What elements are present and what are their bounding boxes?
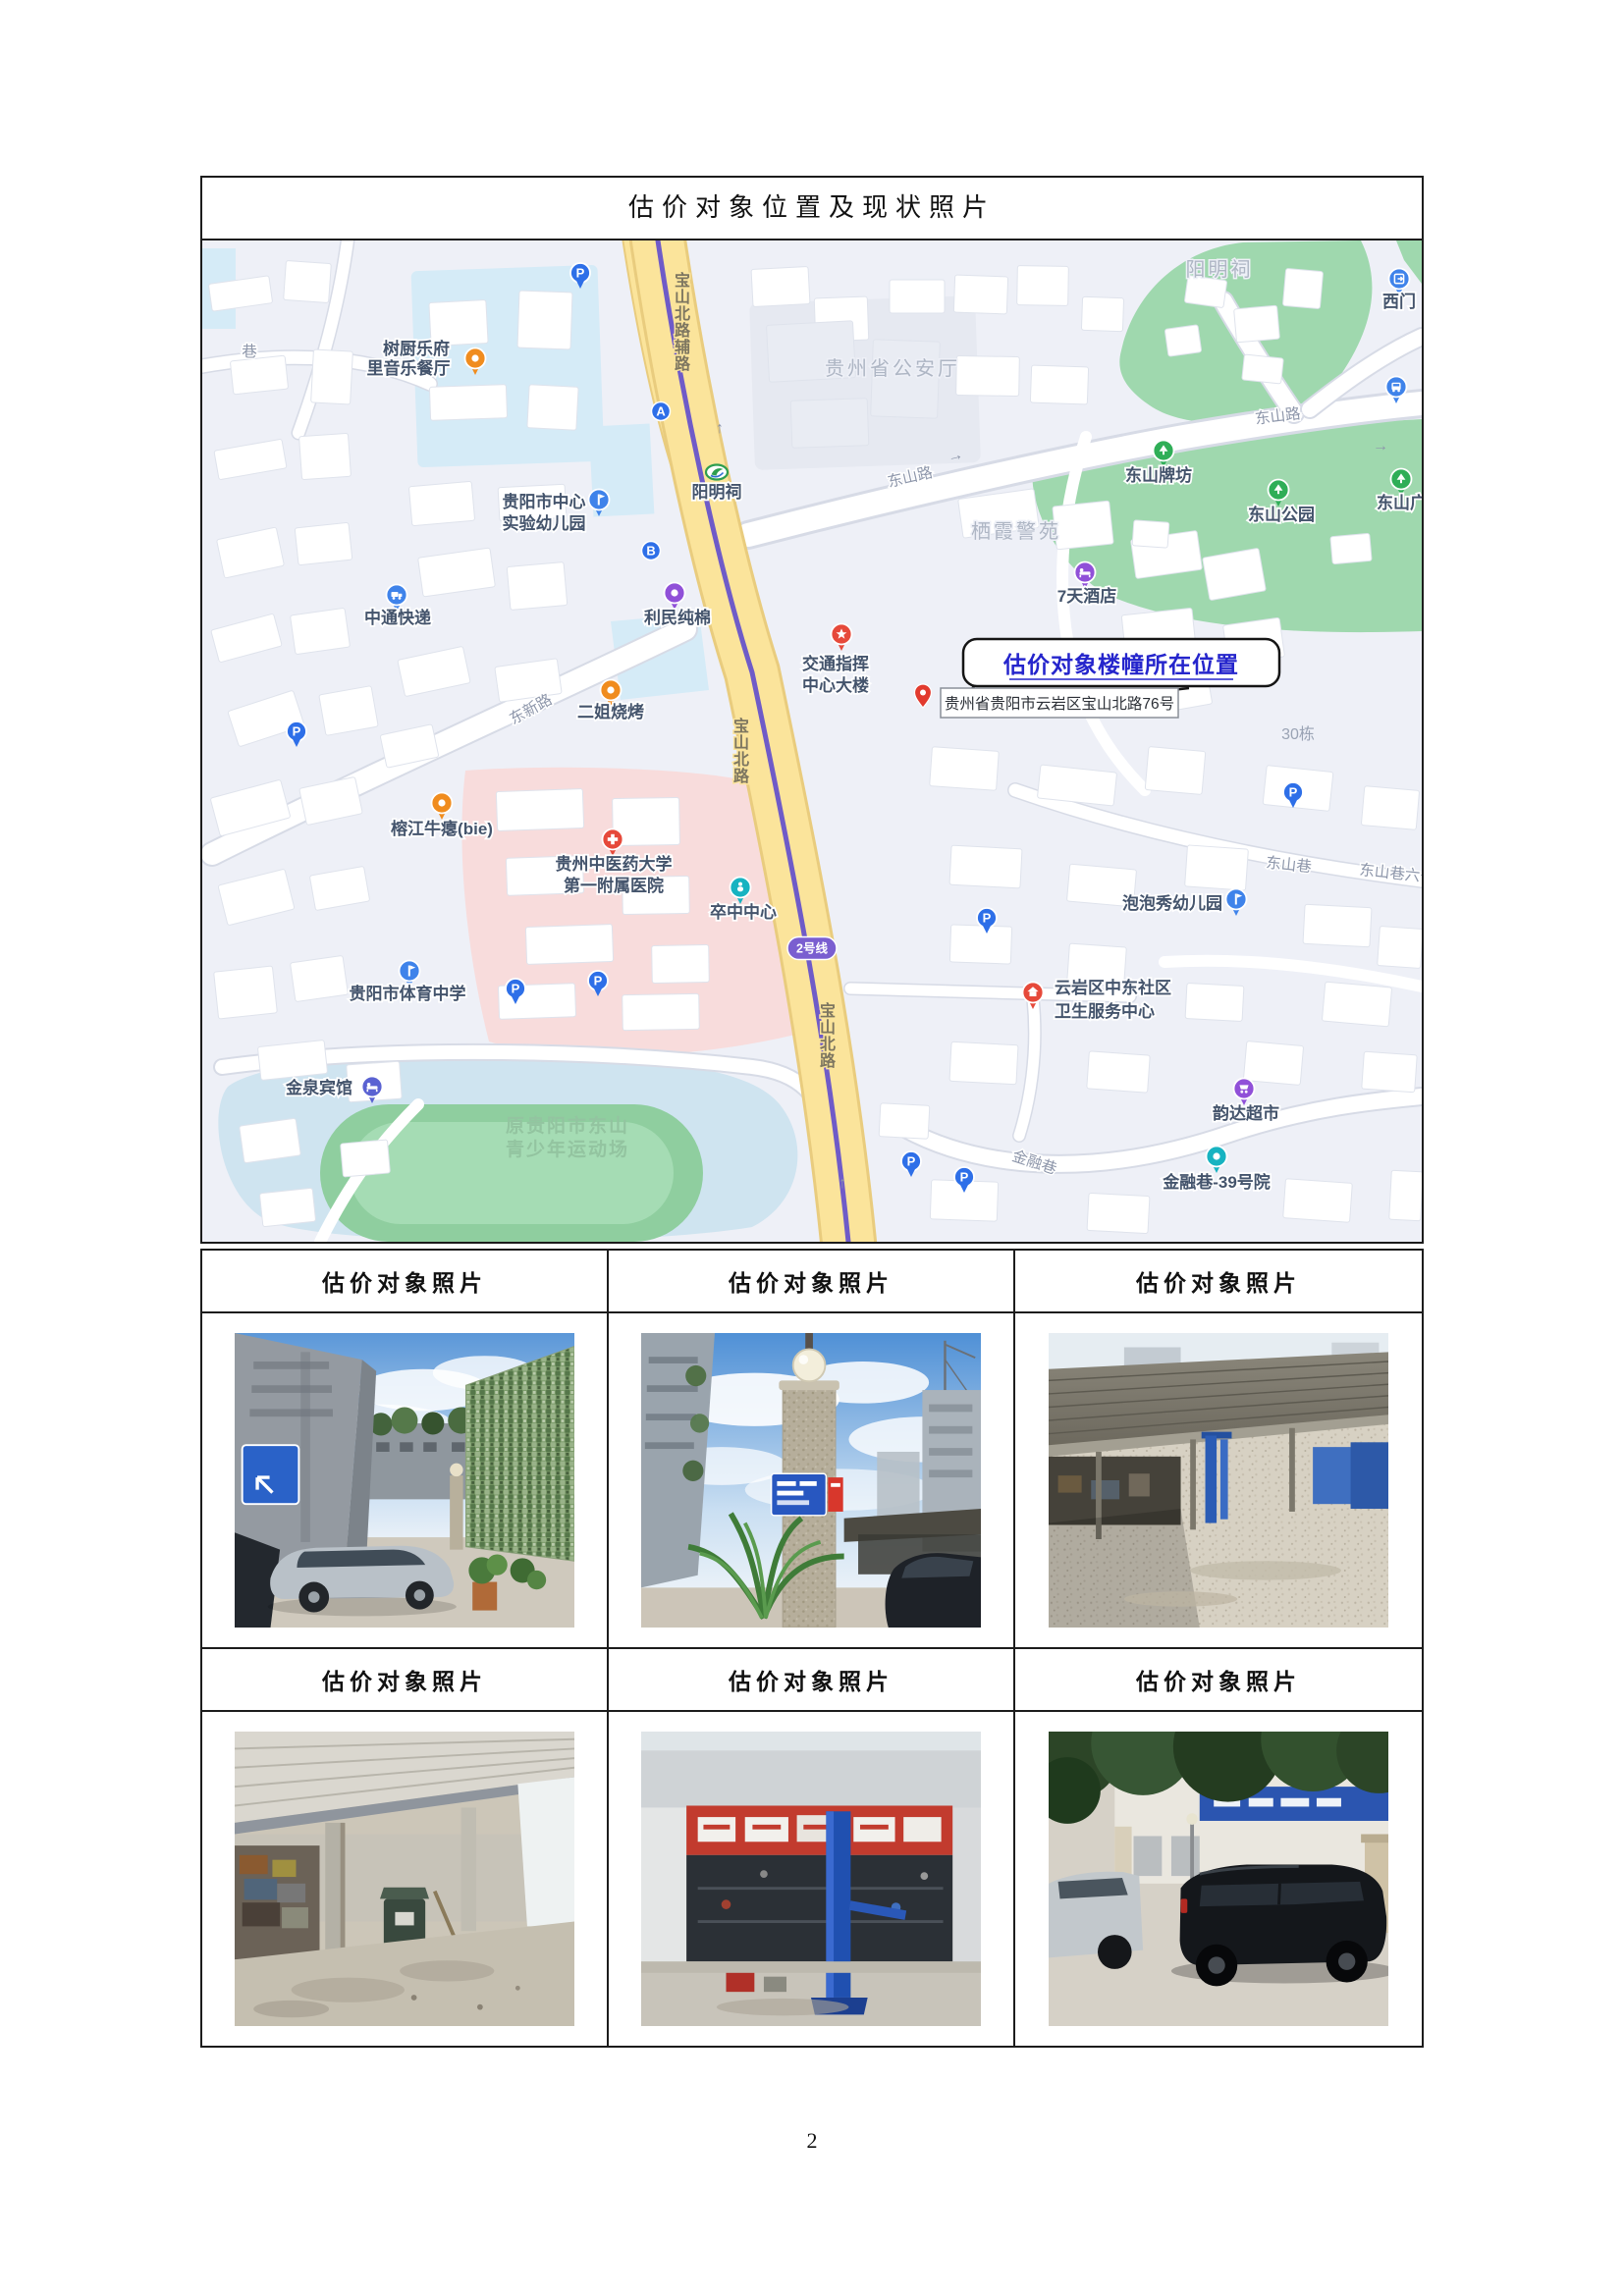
photo-cell-3 [1015, 1313, 1422, 1649]
photo-5 [641, 1732, 981, 2026]
map-pin-line2: 2号线 [787, 937, 837, 960]
map-label: 贵阳市体育中学 [350, 984, 466, 1003]
photo-cell-6 [1015, 1712, 1422, 2046]
map-label: 卫生服务中心 [1055, 1001, 1155, 1021]
map-label: 卒中中心 [710, 902, 777, 922]
map-label: 30栋 [1281, 725, 1315, 743]
map-label: 里音乐餐厅 [367, 358, 451, 378]
map-pin-metro [706, 465, 728, 480]
map-label: 宝山北路 [820, 1001, 837, 1070]
map-label: 第一附属医院 [564, 876, 664, 895]
callout-text: 估价对象楼幢所在位置 [1002, 652, 1239, 677]
photo-header-4: 估价对象照片 [202, 1649, 609, 1712]
map-label: 金融巷-39号院 [1162, 1172, 1271, 1192]
map-label: 实验幼儿园 [503, 513, 586, 533]
map-label: 交通指挥 [802, 654, 869, 673]
map-label: 西门 [1382, 292, 1416, 311]
map-label: 栖霞警苑 [971, 520, 1061, 543]
photo-header-2: 估价对象照片 [609, 1251, 1015, 1313]
photo-1 [235, 1333, 574, 1628]
map-label: 东山广场 [1377, 493, 1422, 512]
map-label: 中通快递 [364, 608, 431, 627]
svg-text:P: P [960, 1170, 969, 1185]
photo-3 [1049, 1333, 1388, 1628]
map-label: 云岩区中东社区 [1055, 978, 1171, 997]
svg-text:P: P [512, 982, 520, 996]
map: 估价对象楼幢所在位置 贵州省贵阳市云岩区宝山北路76号 PPPPPPPPAB2号… [202, 240, 1422, 1242]
map-label: → [1373, 438, 1388, 454]
map-label: 金泉宾馆 [285, 1078, 352, 1097]
photo-4 [235, 1732, 574, 2026]
photo-cell-1 [202, 1313, 609, 1649]
photo-header-6: 估价对象照片 [1015, 1649, 1422, 1712]
map-label: 阳明祠 [692, 482, 742, 502]
map-label: 巷 [242, 343, 257, 360]
svg-text:P: P [293, 724, 301, 739]
map-label: 青少年运动场 [506, 1138, 629, 1160]
photo-cell-4 [202, 1712, 609, 2046]
map-label: 树厨乐府 [383, 339, 450, 358]
photo-grid: 估价对象照片 估价对象照片 估价对象照片 [200, 1249, 1424, 2048]
photo-cell-2 [609, 1313, 1015, 1649]
map-label: 7天酒店 [1057, 586, 1116, 606]
map-label: 阳明祠 [1186, 258, 1254, 281]
photo-2 [641, 1333, 981, 1628]
page-number: 2 [0, 2128, 1624, 2154]
map-label: 二姐烧烤 [577, 702, 644, 721]
photo-6 [1049, 1732, 1388, 2026]
map-pin-badge: B [642, 542, 661, 561]
photo-header-1: 估价对象照片 [202, 1251, 609, 1313]
photo-cell-5 [609, 1712, 1015, 2046]
map-label: 贵阳市中心 [503, 492, 586, 511]
address-text: 贵州省贵阳市云岩区宝山北路76号 [945, 695, 1174, 713]
svg-text:A: A [656, 404, 666, 419]
map-label: 贵州省公安厅 [825, 357, 960, 380]
svg-text:2号线: 2号线 [796, 941, 828, 956]
map-label: 原贵阳市东山 [506, 1114, 629, 1137]
map-label: 利民纯棉 [644, 608, 711, 627]
map-label: 泡泡秀幼儿园 [1122, 893, 1222, 913]
svg-text:P: P [594, 974, 603, 988]
map-label: 韵达超市 [1213, 1103, 1279, 1123]
map-label: ↑ [716, 420, 724, 437]
map-label: ↑ [839, 1175, 846, 1192]
svg-text:P: P [983, 911, 992, 926]
map-label: 宝山北路辅路 [675, 271, 691, 373]
map-container: 估价对象楼幢所在位置 贵州省贵阳市云岩区宝山北路76号 PPPPPPPPAB2号… [202, 240, 1422, 1242]
svg-text:P: P [576, 266, 585, 281]
map-pin-badge: A [652, 402, 671, 421]
map-table: 估价对象位置及现状照片 [200, 176, 1424, 1244]
map-label: 东山牌坊 [1125, 465, 1192, 485]
map-label: 榕江牛瘪(bie) [391, 819, 493, 838]
svg-text:P: P [1289, 785, 1298, 800]
map-label: 东山公园 [1248, 505, 1315, 524]
photo-header-3: 估价对象照片 [1015, 1251, 1422, 1313]
map-label: 贵州中医药大学 [556, 854, 673, 874]
map-label: 宝山北路 [733, 717, 750, 785]
document-page: 估价对象位置及现状照片 [0, 0, 1624, 2296]
svg-text:P: P [907, 1154, 916, 1169]
svg-text:B: B [646, 544, 655, 559]
page-title: 估价对象位置及现状照片 [202, 178, 1422, 240]
photo-header-5: 估价对象照片 [609, 1649, 1015, 1712]
map-label: 中心大楼 [802, 675, 869, 695]
